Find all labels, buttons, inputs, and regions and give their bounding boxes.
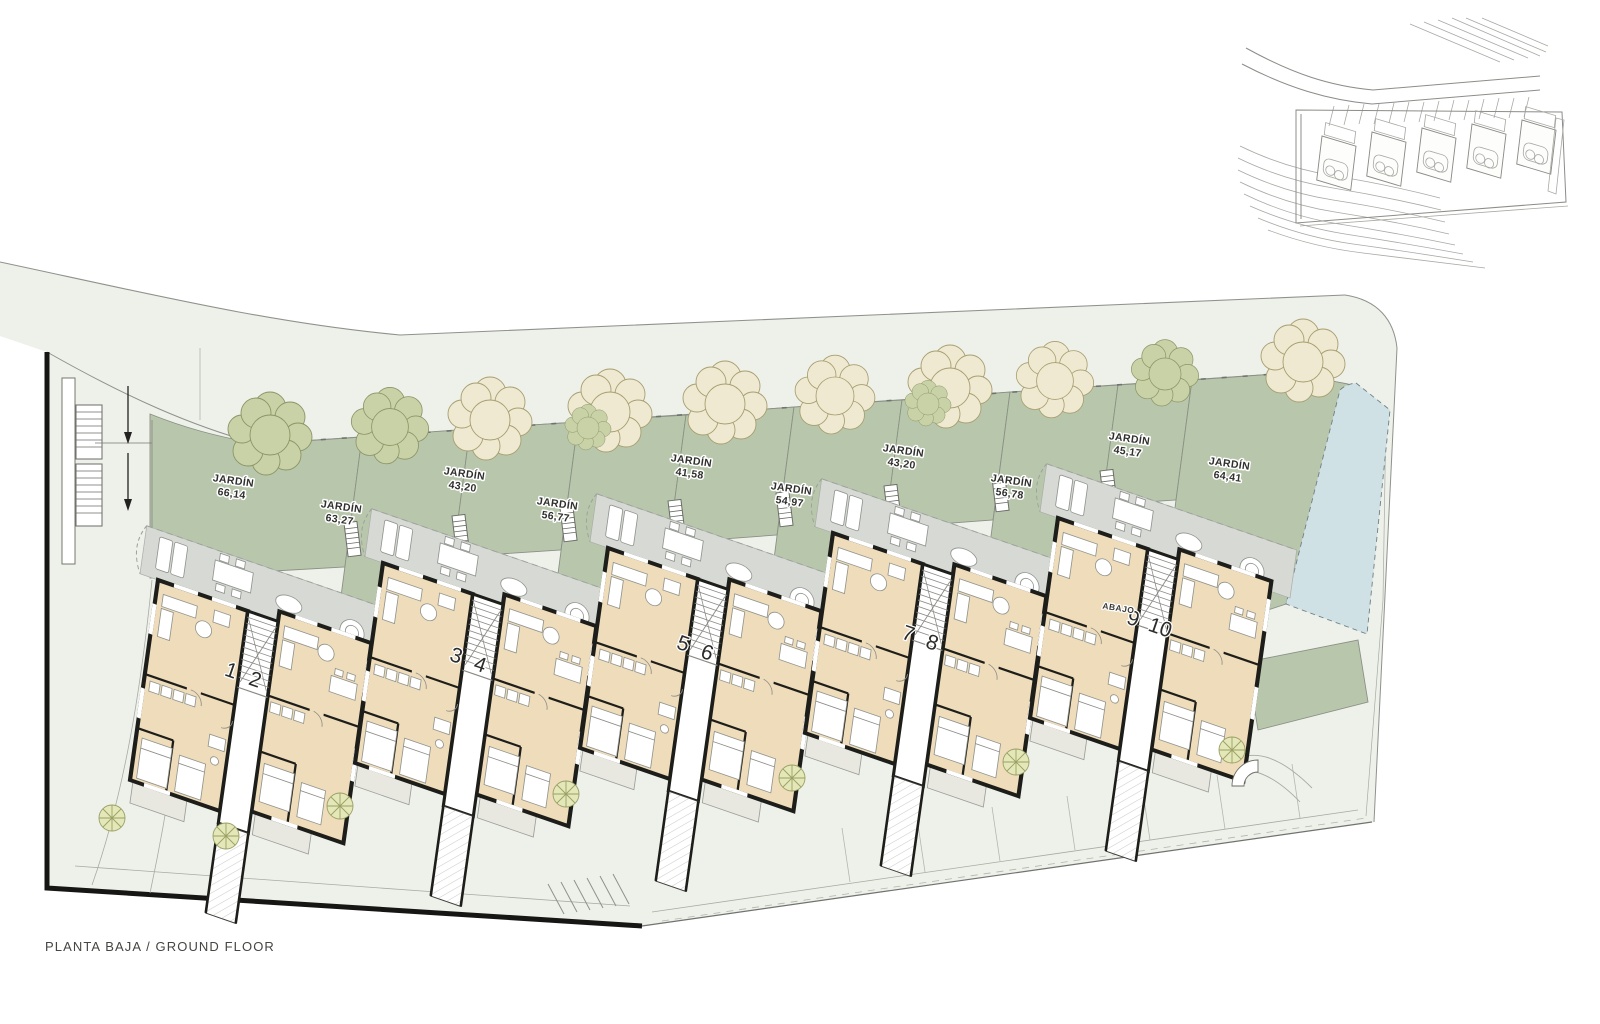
small-tree-icon (1219, 737, 1245, 763)
small-tree-icon (213, 823, 239, 849)
site-plan-canvas: JARDÍN66,14 JARDÍN63,27 JARDÍN43,20 JARD… (0, 0, 1600, 1024)
small-tree-icon (779, 765, 805, 791)
small-tree-icon (99, 805, 125, 831)
small-tree-icon (327, 793, 353, 819)
key-map (1238, 18, 1568, 268)
small-tree-icon (553, 781, 579, 807)
plan-title: PLANTA BAJA / GROUND FLOOR (45, 939, 275, 954)
floor-plan-page: JARDÍN66,14 JARDÍN63,27 JARDÍN43,20 JARD… (0, 0, 1600, 1024)
small-tree-icon (1003, 749, 1029, 775)
